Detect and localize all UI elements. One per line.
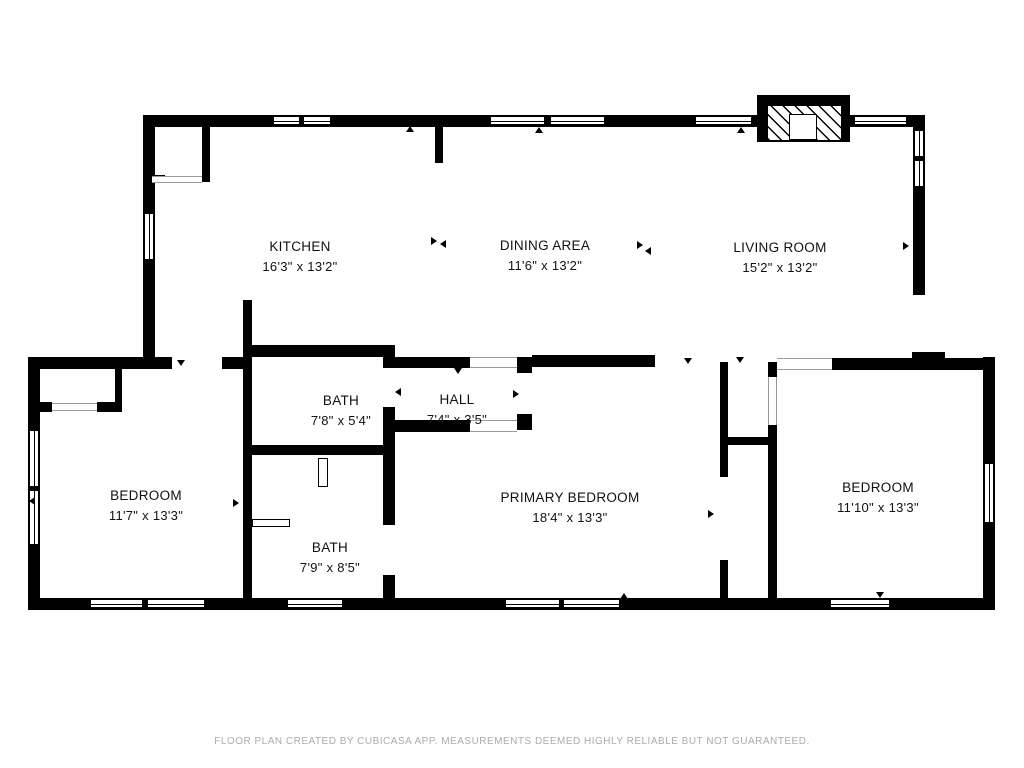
window (550, 116, 605, 125)
room-boundary-marker (903, 242, 909, 250)
room-label-bedroom-left: BEDROOM 11'7" x 13'3" (109, 486, 183, 526)
door-swing-marker (233, 499, 239, 507)
door-swing-marker (332, 448, 340, 454)
closet-column-right-top (768, 362, 777, 377)
closet-column-left-upper (720, 362, 728, 438)
door-swing-marker (177, 360, 185, 366)
hall-east-stub-top (517, 357, 532, 373)
room-name: DINING AREA (500, 236, 590, 256)
footer-disclaimer: FLOOR PLAN CREATED BY CUBICASA APP. MEAS… (214, 736, 809, 747)
window (914, 130, 924, 157)
room-name: PRIMARY BEDROOM (500, 488, 639, 508)
room-name: BEDROOM (109, 486, 183, 506)
room-label-living: LIVING ROOM 15'2" x 13'2" (733, 238, 826, 278)
baths-divider-wall (243, 445, 395, 455)
window (695, 116, 752, 125)
window (563, 599, 620, 608)
hall-east-stub-bottom (517, 414, 532, 430)
room-label-dining: DINING AREA 11'6" x 13'2" (500, 236, 590, 276)
window (984, 463, 994, 523)
room-dimensions: 7'4" x 3'5" (427, 410, 487, 430)
room-dimensions: 16'3" x 13'2" (262, 257, 337, 277)
room-label-bath-upper: BATH 7'8" x 5'4" (311, 391, 371, 431)
door-swing-marker (29, 497, 35, 505)
fireplace-firebox (789, 114, 817, 140)
room-name: BEDROOM (837, 478, 919, 498)
window (144, 213, 154, 260)
door-swing-marker (395, 388, 401, 396)
door-swing-marker (408, 359, 416, 365)
window (914, 160, 924, 187)
hall-top-wall (393, 357, 470, 368)
room-dimensions: 7'8" x 5'4" (311, 411, 371, 431)
room-label-primary: PRIMARY BEDROOM 18'4" x 13'3" (500, 488, 639, 528)
room-dimensions: 15'2" x 13'2" (733, 258, 826, 278)
room-dimensions: 18'4" x 13'3" (500, 508, 639, 528)
floor-plan: KITCHEN 16'3" x 13'2" DINING AREA 11'6" … (0, 0, 1024, 768)
room-dimensions: 7'9" x 8'5" (300, 558, 360, 578)
window (273, 116, 300, 125)
room-label-bath-lower: BATH 7'9" x 8'5" (300, 538, 360, 578)
window (830, 599, 890, 608)
kitchen-closet-wall (202, 127, 210, 182)
window-marker (876, 592, 884, 598)
room-dimensions: 11'10" x 13'3" (837, 498, 919, 518)
closet-column-left-mid (720, 445, 728, 477)
middle-wall-west (28, 357, 172, 369)
room-name: BATH (311, 391, 371, 411)
primary-west-wall-lower (383, 575, 395, 598)
cased-opening (52, 403, 97, 411)
cased-opening (152, 176, 202, 183)
window-marker (406, 126, 414, 132)
window (854, 116, 907, 125)
room-dimensions: 11'7" x 13'3" (109, 506, 183, 526)
room-name: LIVING ROOM (733, 238, 826, 258)
door-swing-marker (313, 347, 321, 353)
closet-column-right-main (768, 425, 777, 603)
room-name: BATH (300, 538, 360, 558)
door-swing-marker (454, 368, 462, 374)
window (147, 599, 205, 608)
room-name: HALL (427, 390, 487, 410)
window (90, 599, 143, 608)
middle-wall-east (832, 358, 995, 370)
room-boundary-marker (440, 240, 446, 248)
bedroom-closet-bottom-left (28, 402, 52, 412)
door-swing-marker (513, 390, 519, 398)
cased-opening (777, 358, 832, 370)
door-swing-marker (684, 358, 692, 364)
window (287, 599, 343, 608)
primary-west-wall-mid (383, 407, 395, 525)
middle-wall-east-bump (912, 352, 945, 358)
door-swing-marker (620, 593, 628, 599)
bath-fixture (252, 519, 290, 527)
bedroom-closet-bottom-right (97, 402, 122, 412)
cased-opening (470, 357, 517, 368)
middle-wall-d (532, 355, 655, 367)
cased-opening (768, 377, 777, 425)
door-swing-marker (874, 362, 882, 368)
closet-divider-wall (720, 437, 777, 445)
room-name: KITCHEN (262, 237, 337, 257)
kitchen-dining-wall-stub (435, 127, 443, 163)
window-marker (737, 127, 745, 133)
room-label-bedroom-right: BEDROOM 11'10" x 13'3" (837, 478, 919, 518)
room-label-kitchen: KITCHEN 16'3" x 13'2" (262, 237, 337, 277)
closet-column-left-low (720, 560, 728, 600)
room-boundary-marker (431, 237, 437, 245)
room-boundary-marker (637, 241, 643, 249)
door-swing-marker (736, 357, 744, 363)
door-swing-marker (708, 510, 714, 518)
window (490, 116, 545, 125)
room-dimensions: 11'6" x 13'2" (500, 256, 590, 276)
room-boundary-marker (645, 247, 651, 255)
primary-west-wall-upper (383, 345, 395, 368)
bath-fixture (318, 458, 328, 487)
window (505, 599, 560, 608)
window-marker (535, 127, 543, 133)
window (303, 116, 331, 125)
window (29, 430, 39, 487)
room-label-hall: HALL 7'4" x 3'5" (427, 390, 487, 430)
